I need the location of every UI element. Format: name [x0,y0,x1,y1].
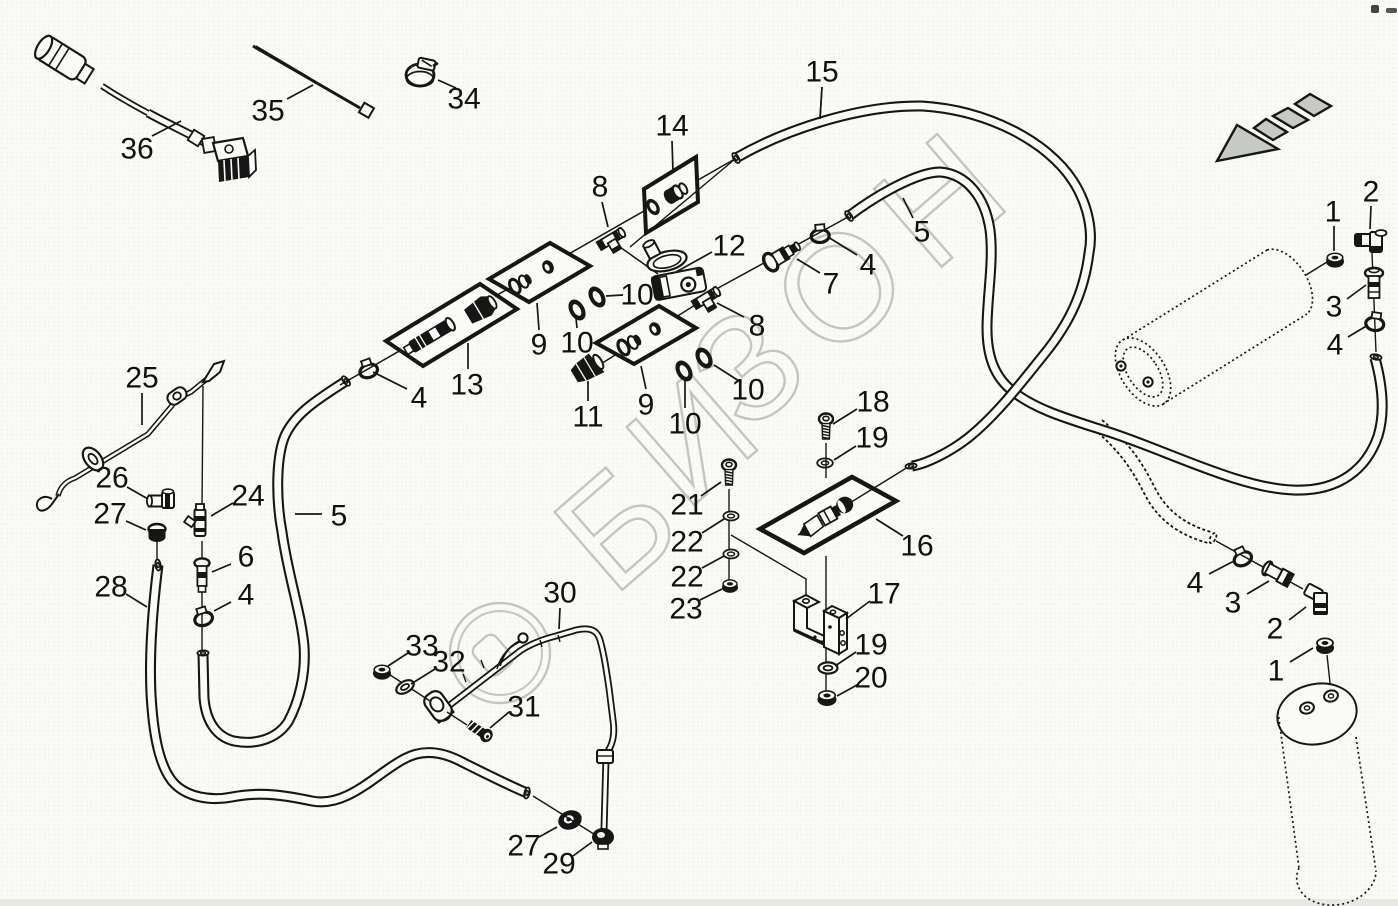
svg-text:12: 12 [712,230,745,263]
svg-text:17: 17 [867,578,900,611]
svg-text:35: 35 [251,95,284,128]
svg-text:32: 32 [432,646,465,679]
svg-text:9: 9 [531,329,548,362]
svg-text:10: 10 [620,279,653,312]
svg-text:19: 19 [855,422,888,455]
svg-text:4: 4 [1187,567,1204,600]
svg-text:1: 1 [1325,196,1342,229]
svg-text:10: 10 [731,374,764,407]
svg-text:5: 5 [331,500,348,533]
svg-text:4: 4 [860,249,877,282]
svg-text:8: 8 [749,310,766,343]
svg-text:1: 1 [1268,655,1285,688]
svg-text:11: 11 [572,401,603,434]
svg-text:13: 13 [450,369,483,402]
svg-text:6: 6 [238,541,255,574]
svg-text:5: 5 [914,216,931,249]
svg-text:22: 22 [670,526,703,559]
svg-text:3: 3 [1326,291,1343,324]
svg-text:36: 36 [120,133,153,166]
svg-text:25: 25 [125,362,158,395]
svg-text:4: 4 [1327,329,1344,362]
svg-text:23: 23 [669,593,702,626]
svg-text:21: 21 [670,489,703,522]
svg-text:3: 3 [1225,587,1242,620]
svg-text:18: 18 [856,386,889,419]
svg-text:34: 34 [447,83,480,116]
svg-text:10: 10 [560,327,593,360]
svg-text:29: 29 [542,848,575,881]
svg-text:24: 24 [231,480,264,513]
svg-text:26: 26 [95,462,128,495]
svg-text:8: 8 [592,171,609,204]
svg-text:31: 31 [507,691,540,724]
svg-text:22: 22 [670,561,703,594]
svg-text:4: 4 [238,579,255,612]
svg-text:27: 27 [93,498,126,531]
svg-text:9: 9 [638,389,655,422]
svg-text:7: 7 [823,268,840,301]
svg-text:14: 14 [655,110,688,143]
svg-text:2: 2 [1267,613,1284,646]
svg-text:28: 28 [94,571,127,604]
svg-text:27: 27 [507,830,540,863]
svg-text:10: 10 [668,408,701,441]
svg-text:2: 2 [1363,176,1380,209]
svg-text:30: 30 [543,577,576,610]
svg-text:16: 16 [900,530,933,563]
svg-text:15: 15 [805,56,838,89]
svg-text:19: 19 [854,629,887,662]
svg-text:20: 20 [854,662,887,695]
svg-text:4: 4 [411,382,428,415]
